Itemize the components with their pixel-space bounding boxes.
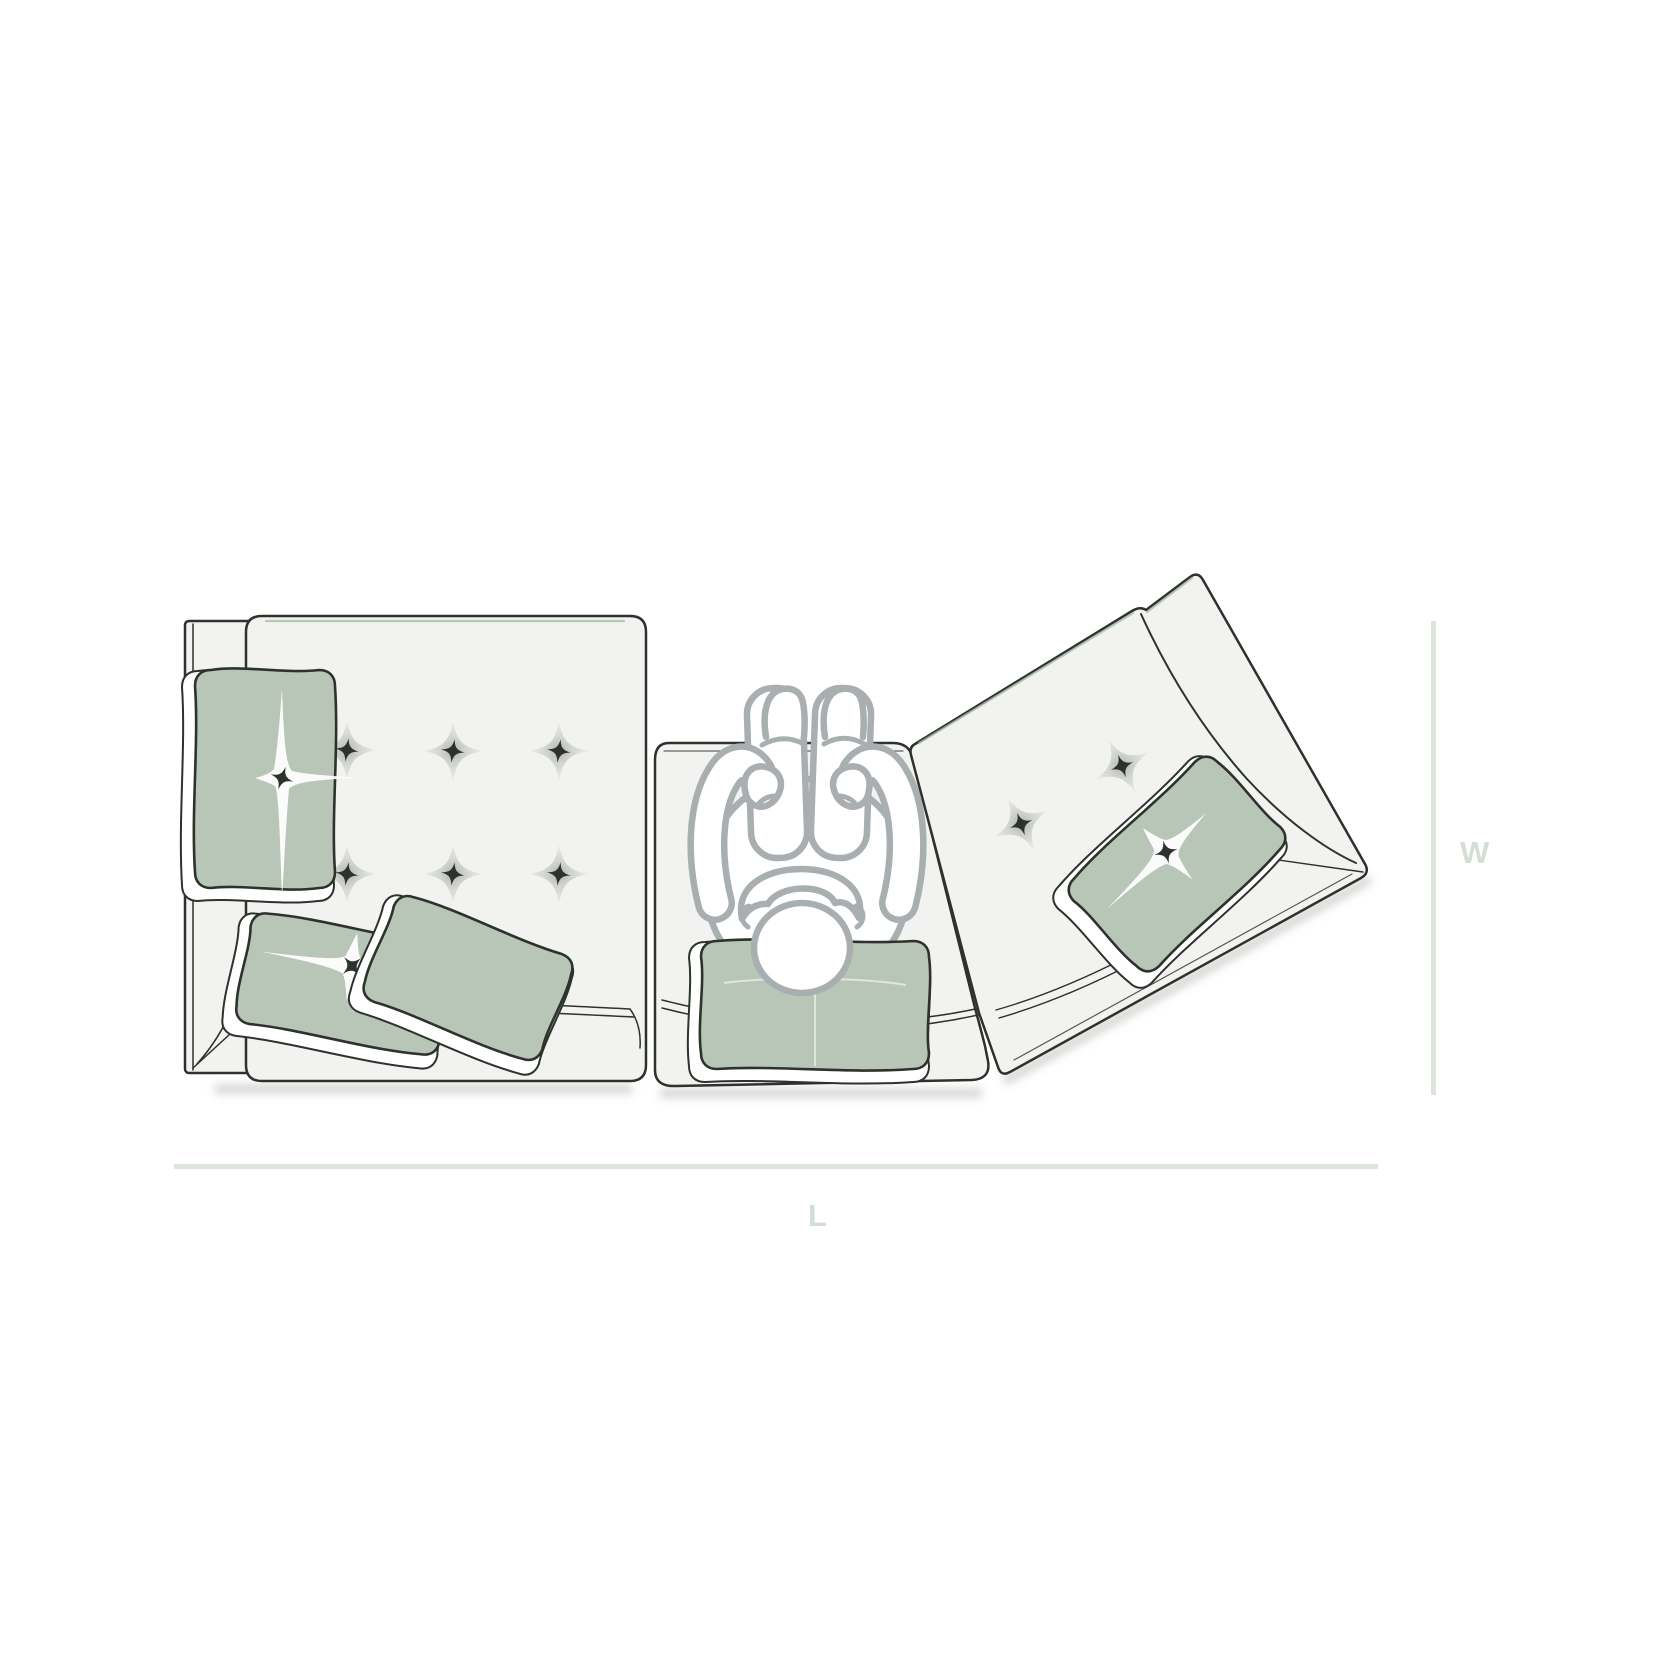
left-seat-module (181, 616, 646, 1081)
person-head (741, 869, 863, 993)
diagram-page: W L (0, 0, 1668, 1668)
person-left-foot (765, 689, 805, 737)
length-dimension-line (174, 1164, 1378, 1169)
right-seat-module (911, 575, 1367, 1074)
person-right-foot (824, 689, 864, 737)
person-face (754, 903, 850, 993)
width-dimension-line (1431, 621, 1436, 1095)
sofa-top-view-diagram (0, 0, 1668, 1668)
width-dimension-label: W (1460, 835, 1490, 871)
length-dimension-label: L (808, 1198, 828, 1234)
left-back-pillow (181, 668, 356, 902)
